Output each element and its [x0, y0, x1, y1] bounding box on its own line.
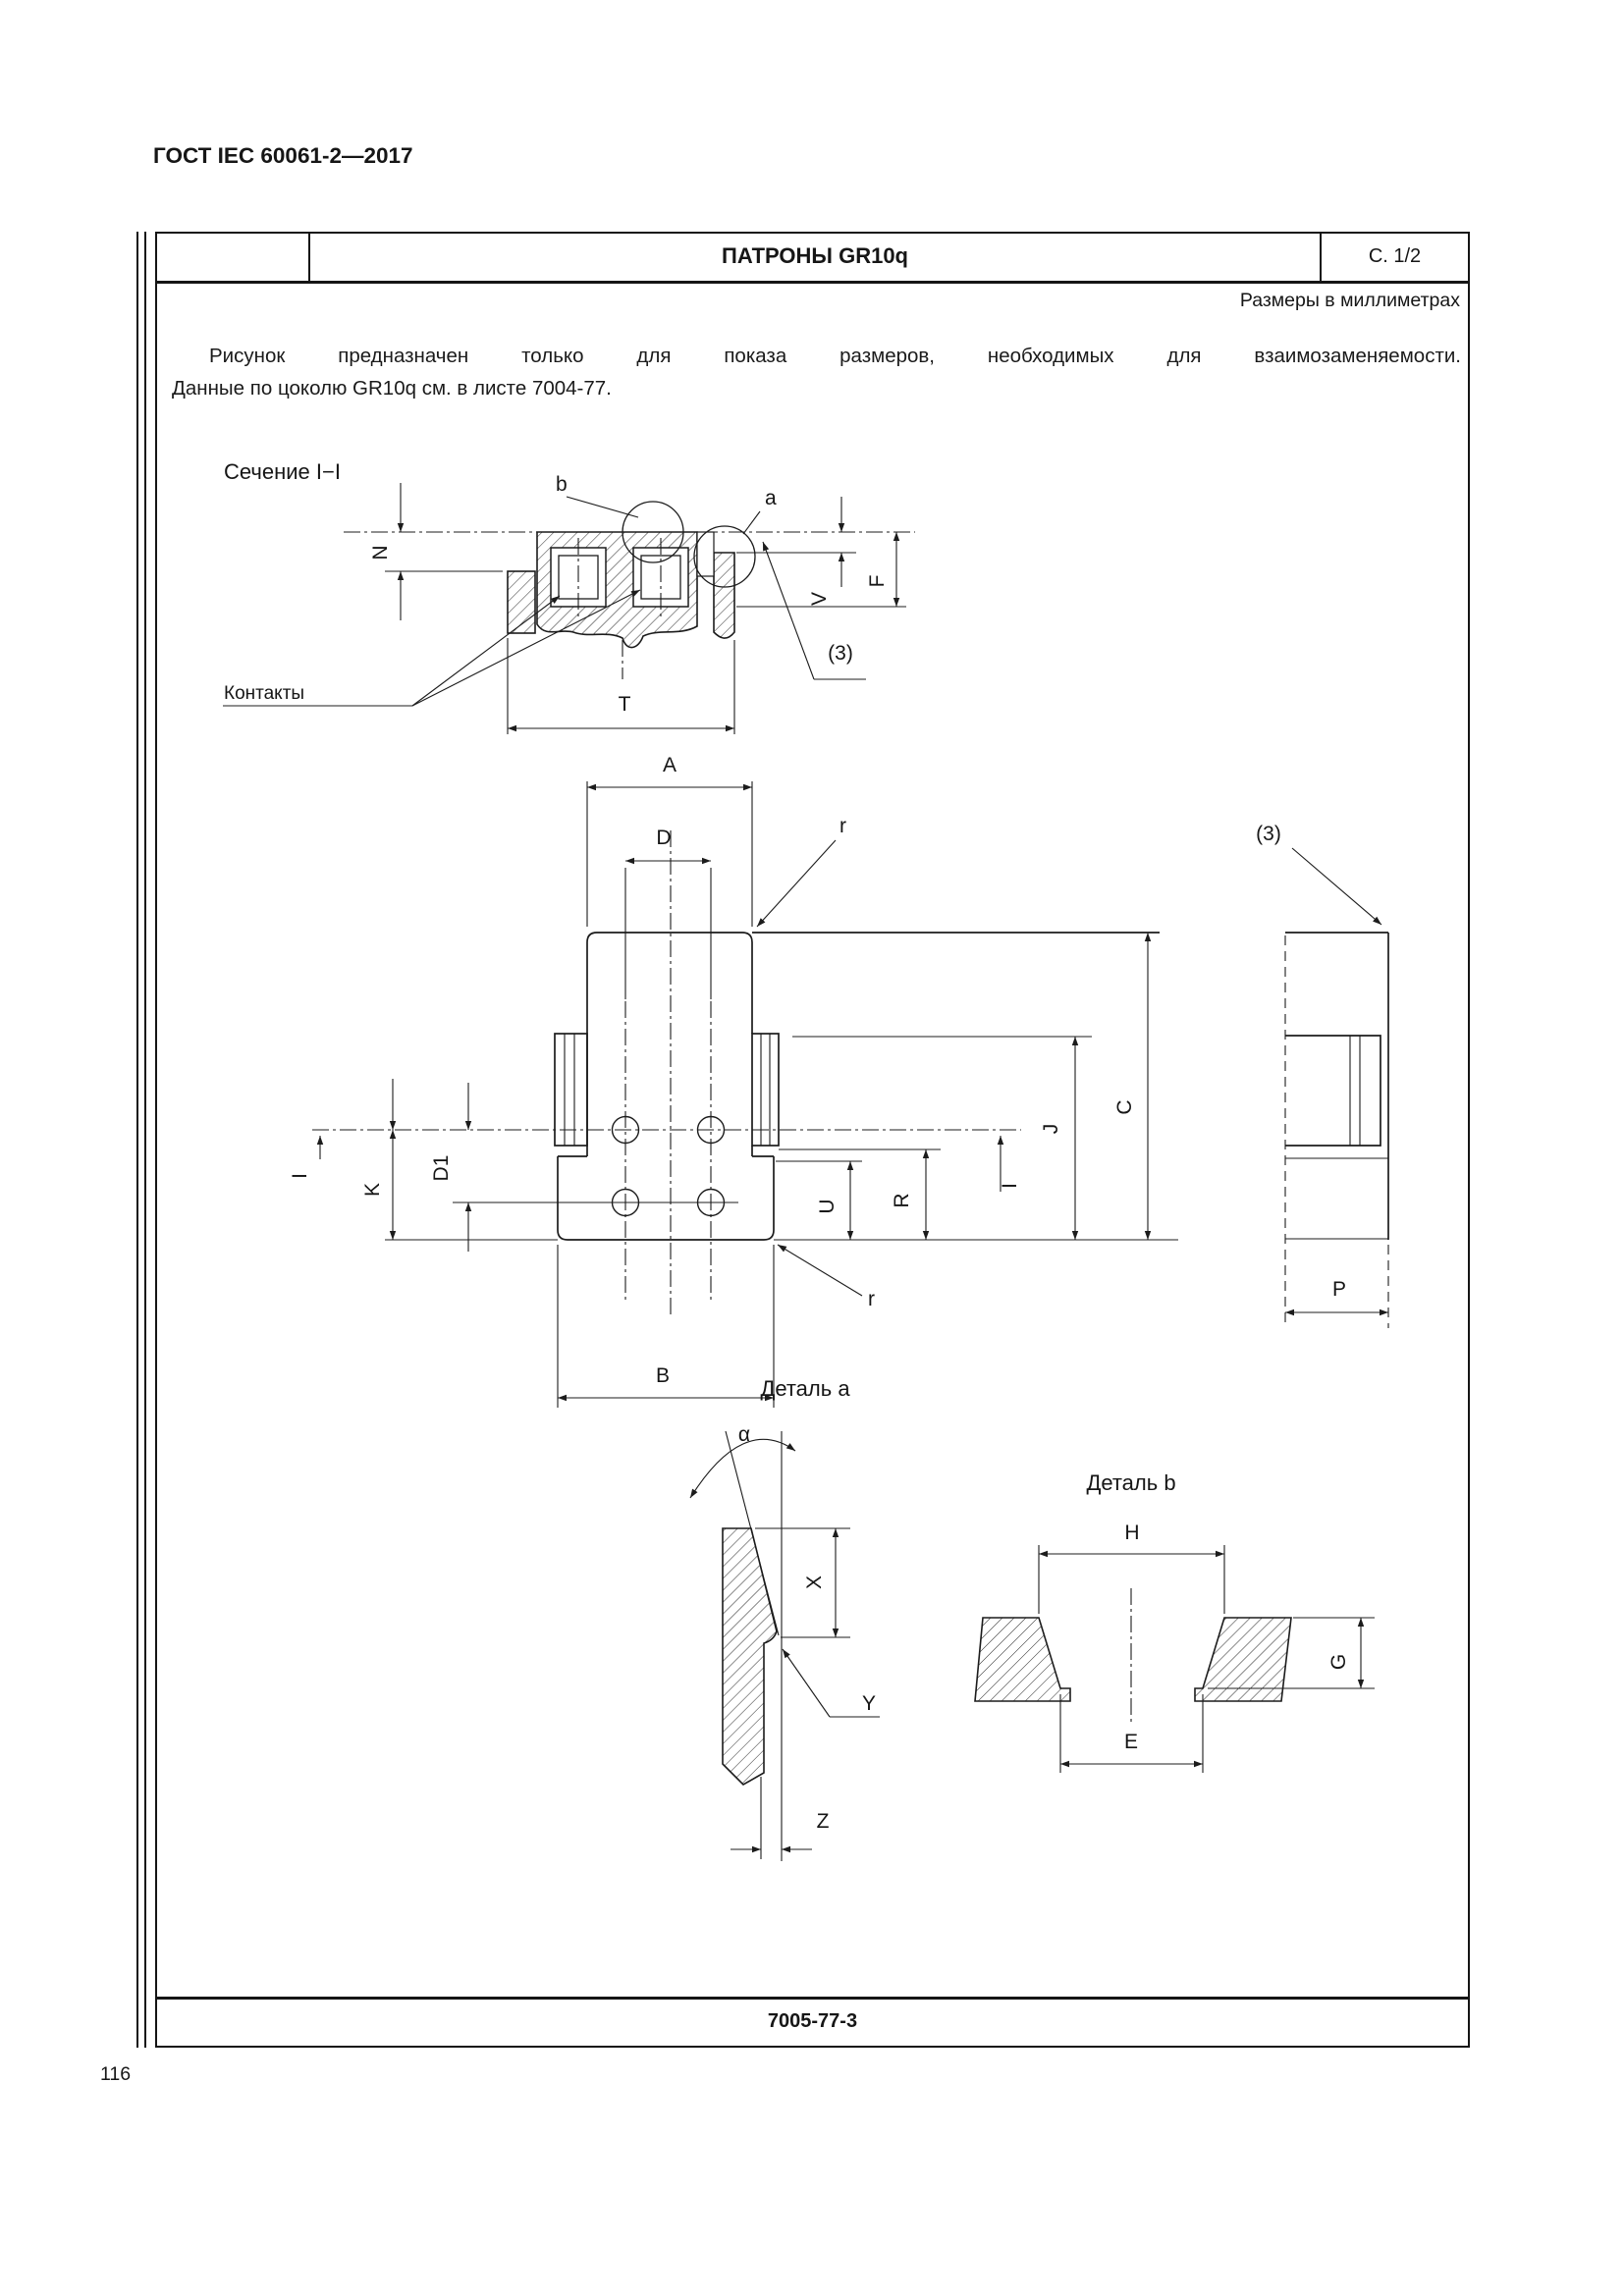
label-R: R: [891, 1193, 913, 1207]
section-right-hook: [714, 553, 734, 638]
label-a: a: [765, 487, 777, 509]
section-view: Сечение I−I b a: [223, 459, 915, 734]
label-U: U: [816, 1199, 839, 1213]
dim-B: B: [558, 1245, 774, 1408]
detail-a-angle-arc: [690, 1439, 795, 1498]
label-I-right: I: [999, 1183, 1021, 1189]
dim-J: J: [1040, 1037, 1075, 1240]
section-caption: Сечение I−I: [224, 459, 341, 484]
dim-D1: D1: [430, 1083, 468, 1252]
label-alpha: α: [738, 1423, 750, 1446]
label-V: V: [808, 592, 831, 606]
label-r-top: r: [839, 815, 846, 837]
label-J: J: [1040, 1124, 1062, 1135]
detail-a-bar: [723, 1528, 777, 1785]
step-left: [558, 1156, 587, 1240]
label-T: T: [619, 693, 631, 716]
detail-b-left-block: [975, 1618, 1070, 1701]
dim-D: D: [625, 827, 711, 999]
dim-Z: Z: [731, 1777, 830, 1859]
dim-N: N: [369, 483, 503, 620]
label-Y: Y: [862, 1692, 876, 1715]
dim-P: P: [1285, 1278, 1388, 1312]
step-right: [752, 1156, 774, 1240]
side-recess: [1285, 1036, 1380, 1146]
label-H: H: [1124, 1522, 1139, 1544]
label-D1: D1: [430, 1155, 453, 1182]
contact-window-left: [551, 538, 606, 618]
ear-left: [555, 1034, 587, 1146]
note-3-section: (3): [763, 542, 866, 679]
leader-b: [567, 497, 638, 517]
label-r-bottom: r: [868, 1288, 875, 1310]
column-outline: [587, 933, 752, 1156]
side-view: P: [1285, 933, 1388, 1328]
section-mark-right: I: [999, 1136, 1021, 1192]
callout-r-bottom: r: [778, 1245, 875, 1310]
front-view: A D r K D1: [289, 754, 1381, 1408]
note-3-front: (3): [1256, 823, 1381, 925]
label-X: X: [803, 1575, 826, 1589]
callout-r-top: r: [757, 815, 846, 927]
label-note3-front: (3): [1256, 823, 1281, 845]
section-mark-left: I: [289, 1136, 320, 1179]
label-D: D: [656, 827, 671, 849]
label-P: P: [1332, 1278, 1346, 1301]
standard-sheet-page: ГОСТ IEC 60061-2—2017 ПАТРОНЫ GR10q С. 1…: [0, 0, 1624, 2296]
dim-U: U: [816, 1161, 850, 1240]
callout-Y: Y: [783, 1649, 880, 1717]
dim-R: R: [891, 1149, 926, 1240]
label-N: N: [369, 545, 392, 560]
detail-a-caption: Деталь a: [760, 1376, 850, 1401]
label-I-left: I: [289, 1173, 311, 1179]
label-E: E: [1124, 1731, 1138, 1753]
label-b: b: [556, 473, 568, 496]
contact-window-right: [633, 538, 688, 618]
leader-a: [743, 511, 760, 534]
technical-drawing: Сечение I−I b a: [0, 0, 1624, 2296]
detail-b-caption: Деталь b: [1086, 1470, 1175, 1495]
label-C: C: [1113, 1099, 1136, 1114]
dim-C: C: [1113, 933, 1148, 1240]
detail-b-view: Деталь b H G E: [975, 1470, 1375, 1773]
label-A: A: [663, 754, 677, 776]
label-B: B: [656, 1364, 670, 1387]
label-Z: Z: [817, 1810, 830, 1833]
label-F: F: [866, 575, 889, 588]
ear-right: [752, 1034, 779, 1146]
label-K: K: [361, 1183, 384, 1197]
dim-K: K: [361, 1079, 393, 1240]
label-note3: (3): [828, 642, 853, 665]
label-G: G: [1327, 1654, 1350, 1670]
dim-T: T: [508, 638, 734, 734]
contacts-label: Контакты: [224, 683, 304, 704]
detail-a-view: Деталь a α X Y Z: [690, 1376, 880, 1861]
